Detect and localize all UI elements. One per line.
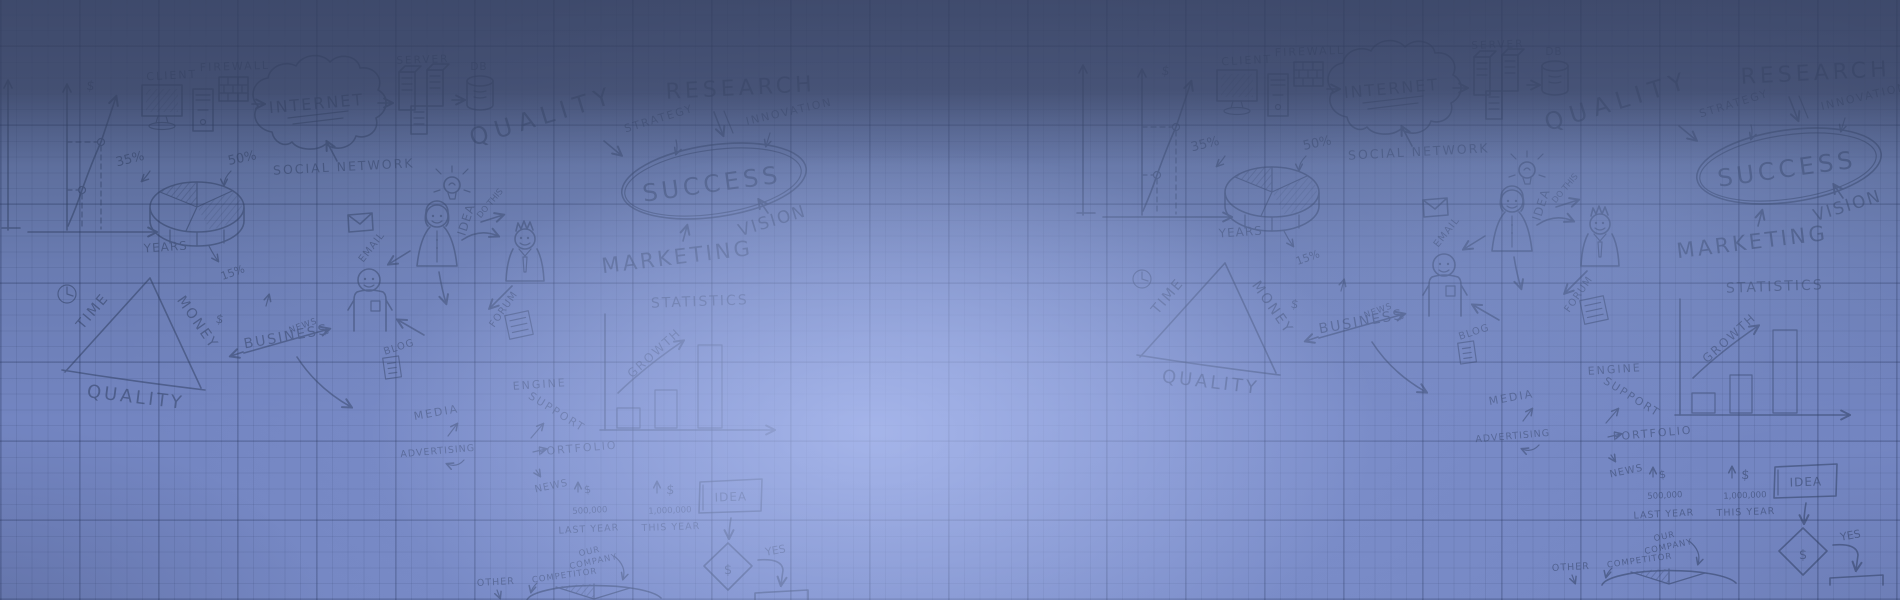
doodle-tile-right [1077,38,1900,585]
business-doodle-hero-banner: $ YEARS 35% 50% [0,0,1900,600]
doodle-sketch-layer: $ YEARS 35% 50% [0,0,1900,600]
doodle-tile-left [2,53,834,600]
